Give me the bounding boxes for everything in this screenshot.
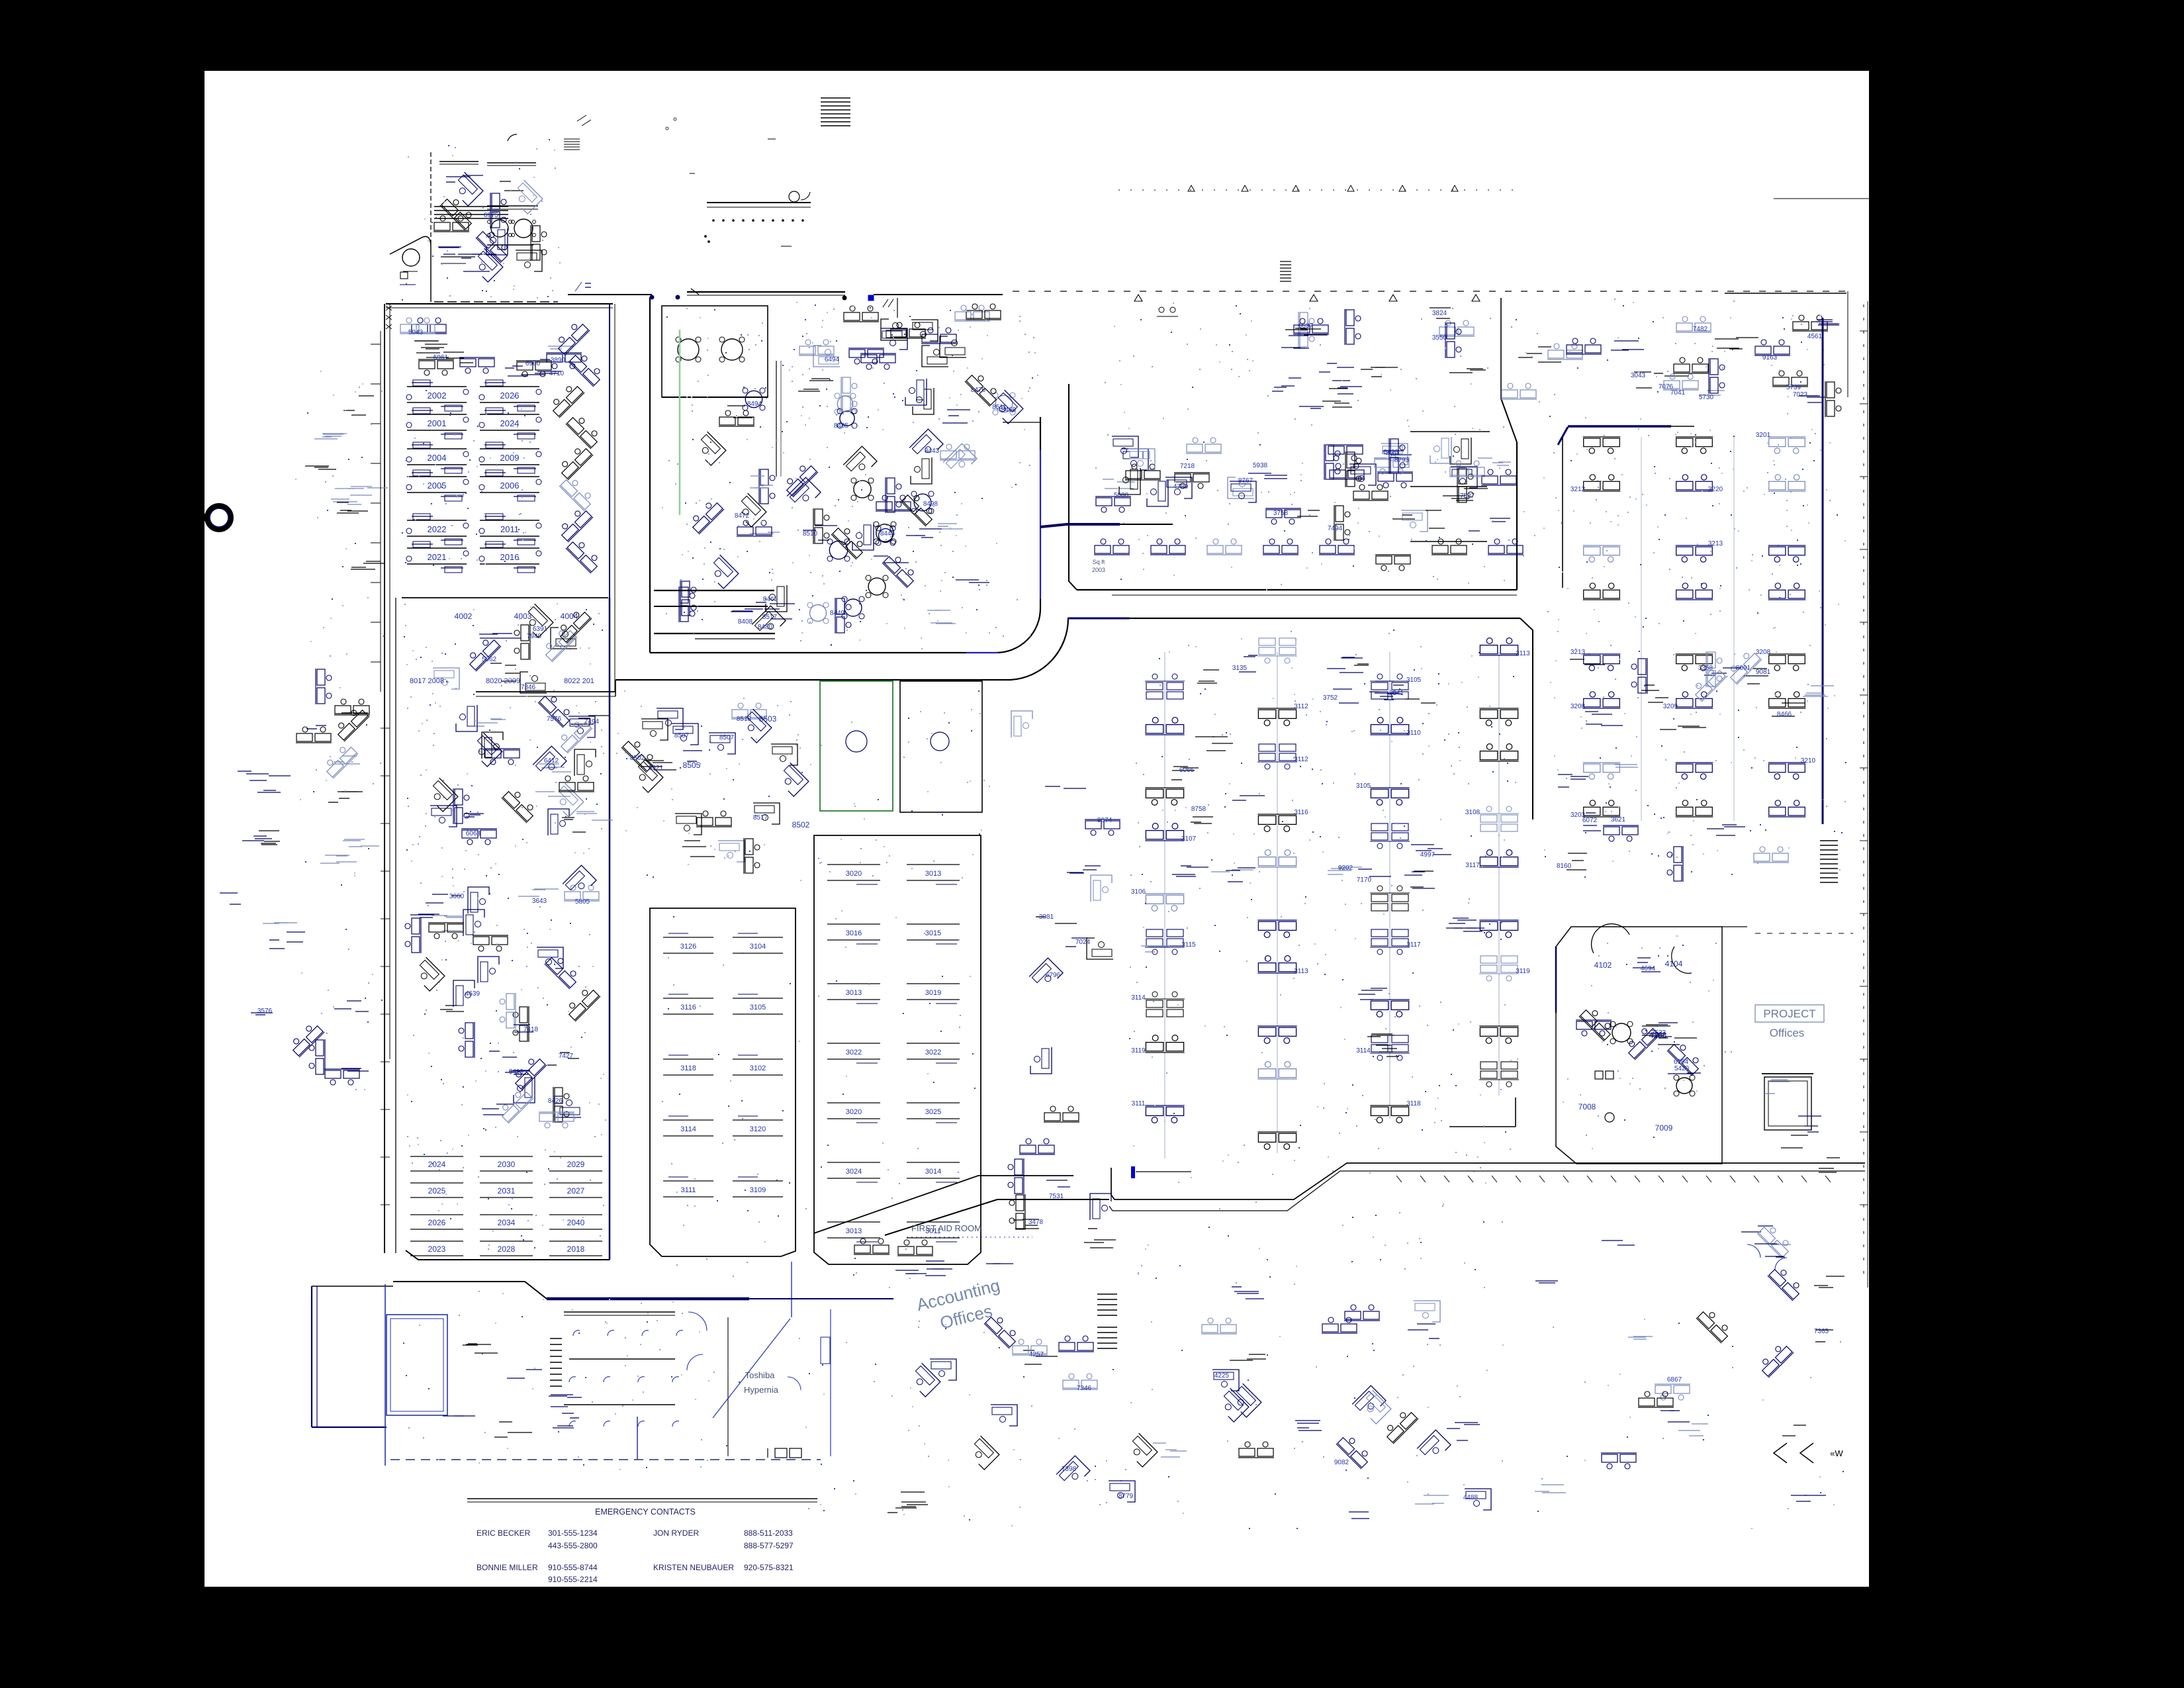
svg-text:FIRST AID ROOM: FIRST AID ROOM — [911, 1223, 981, 1233]
svg-text:8758: 8758 — [1191, 806, 1206, 813]
svg-text:3824: 3824 — [1432, 310, 1447, 317]
svg-text:2006: 2006 — [500, 481, 520, 491]
svg-text:8502: 8502 — [792, 820, 810, 829]
svg-text:EMERGENCY CONTACTS: EMERGENCY CONTACTS — [595, 1507, 696, 1517]
svg-text:3550: 3550 — [1432, 334, 1447, 342]
svg-text:2023: 2023 — [428, 1244, 446, 1254]
svg-text:2026: 2026 — [428, 1218, 446, 1227]
svg-text:4639: 4639 — [465, 990, 480, 998]
svg-text:3890: 3890 — [551, 357, 566, 364]
svg-text:JON RYDER: JON RYDER — [653, 1528, 699, 1538]
svg-text:2004: 2004 — [428, 453, 447, 463]
svg-text:8941: 8941 — [1389, 690, 1404, 697]
svg-text:8502: 8502 — [630, 755, 645, 762]
svg-text:8511: 8511 — [992, 404, 1007, 411]
svg-text:6391: 6391 — [533, 626, 548, 633]
svg-text:3115: 3115 — [1181, 941, 1196, 949]
svg-text:BONNIE MILLER: BONNIE MILLER — [477, 1563, 538, 1572]
svg-text:3024: 3024 — [846, 1168, 862, 1176]
svg-text:7398: 7398 — [1062, 1466, 1077, 1473]
svg-text:8022 201: 8022 201 — [564, 677, 594, 685]
svg-text:8505: 8505 — [683, 761, 701, 770]
svg-text:9081: 9081 — [1756, 669, 1771, 676]
svg-text:888-577-5297: 888-577-5297 — [744, 1541, 794, 1550]
svg-text:3106: 3106 — [1131, 888, 1146, 896]
svg-text:6072: 6072 — [1582, 817, 1598, 824]
svg-text:8020 2009: 8020 2009 — [486, 677, 520, 685]
svg-text:888-511-2033: 888-511-2033 — [744, 1528, 793, 1538]
svg-text:8503: 8503 — [759, 714, 777, 724]
svg-text:7346: 7346 — [1077, 1385, 1092, 1392]
svg-text:9202: 9202 — [1338, 865, 1353, 872]
svg-text:7009: 7009 — [1655, 1123, 1673, 1133]
svg-text:5730: 5730 — [1699, 394, 1714, 401]
svg-text:7024: 7024 — [1075, 939, 1091, 946]
svg-text:3208: 3208 — [1756, 649, 1771, 656]
svg-text:Sq ft: Sq ft — [1093, 559, 1105, 565]
svg-text:8426: 8426 — [548, 1098, 563, 1105]
svg-text:3114: 3114 — [1131, 994, 1146, 1002]
svg-text:8443: 8443 — [925, 447, 940, 455]
svg-text:4694: 4694 — [1641, 965, 1656, 972]
svg-text:6796: 6796 — [1046, 972, 1061, 979]
svg-text:8779: 8779 — [1118, 1493, 1134, 1500]
svg-text:3102: 3102 — [750, 1064, 766, 1072]
svg-text:3025: 3025 — [925, 1108, 941, 1116]
svg-text:PROJECT: PROJECT — [1763, 1008, 1815, 1020]
svg-text:2024: 2024 — [500, 418, 520, 428]
svg-text:4710: 4710 — [549, 370, 565, 377]
svg-text:910-555-8744: 910-555-8744 — [548, 1563, 598, 1572]
svg-text:3108: 3108 — [1465, 809, 1480, 816]
svg-text:3368: 3368 — [1698, 665, 1713, 672]
svg-text:6494: 6494 — [825, 356, 840, 363]
svg-text:5805: 5805 — [575, 898, 590, 906]
svg-text:4257: 4257 — [1029, 1351, 1044, 1358]
svg-text:4225: 4225 — [1214, 1372, 1230, 1380]
svg-text:3135: 3135 — [1232, 665, 1248, 672]
svg-text:6867: 6867 — [1667, 1376, 1682, 1383]
svg-text:4561: 4561 — [1807, 333, 1823, 340]
svg-text:3013: 3013 — [925, 870, 941, 878]
svg-text:910-555-2214: 910-555-2214 — [548, 1575, 598, 1584]
svg-text:4104: 4104 — [1665, 959, 1683, 968]
svg-text:3213: 3213 — [1570, 649, 1586, 656]
svg-text:3019: 3019 — [925, 989, 941, 997]
svg-text:443-555-2800: 443-555-2800 — [548, 1541, 598, 1550]
svg-text:ERIC BECKER: ERIC BECKER — [477, 1528, 531, 1538]
svg-text:8494: 8494 — [747, 400, 762, 408]
svg-text:7023: 7023 — [1793, 391, 1808, 399]
svg-text:3113: 3113 — [1294, 968, 1308, 975]
svg-text:8466: 8466 — [1777, 711, 1792, 718]
svg-text:3013: 3013 — [846, 1227, 862, 1235]
svg-text:4003: 4003 — [514, 612, 532, 621]
svg-text:7482: 7482 — [1693, 326, 1708, 333]
svg-text:2011: 2011 — [500, 524, 519, 534]
svg-text:3014: 3014 — [925, 1168, 941, 1176]
svg-text:8507: 8507 — [674, 732, 690, 739]
svg-text:5080: 5080 — [1114, 492, 1129, 499]
svg-text:3105: 3105 — [1356, 782, 1371, 790]
svg-text:3116: 3116 — [680, 1004, 696, 1011]
svg-text:8017 2008: 8017 2008 — [410, 677, 444, 685]
svg-text:5938: 5938 — [1253, 462, 1268, 469]
svg-text:920-575-8321: 920-575-8321 — [744, 1563, 794, 1572]
svg-text:3112: 3112 — [1294, 703, 1308, 710]
svg-text:8517: 8517 — [762, 614, 778, 621]
svg-text:6063: 6063 — [466, 830, 481, 837]
svg-text:3104: 3104 — [750, 943, 766, 951]
svg-text:3576: 3576 — [257, 1008, 273, 1015]
svg-text:3220: 3220 — [1708, 486, 1723, 493]
svg-text:2034: 2034 — [498, 1218, 516, 1227]
svg-text:2025: 2025 — [428, 1186, 446, 1196]
svg-text:2018: 2018 — [567, 1244, 585, 1254]
svg-text:3013: 3013 — [846, 989, 862, 997]
svg-text:3111: 3111 — [1132, 1100, 1146, 1107]
svg-text:5043: 5043 — [408, 329, 424, 336]
svg-text:9163: 9163 — [1762, 354, 1778, 361]
svg-text:8480: 8480 — [758, 624, 773, 631]
svg-text:3022: 3022 — [925, 1049, 941, 1056]
svg-text:8510: 8510 — [803, 530, 818, 538]
svg-text:3114: 3114 — [680, 1125, 696, 1133]
svg-text:3621: 3621 — [1611, 816, 1626, 823]
svg-text:3118: 3118 — [680, 1064, 696, 1072]
svg-text:3109: 3109 — [750, 1186, 766, 1194]
svg-text:6412: 6412 — [544, 757, 559, 765]
svg-text:2028: 2028 — [498, 1244, 516, 1254]
svg-text:8498: 8498 — [923, 500, 938, 508]
svg-text:3119: 3119 — [1516, 968, 1530, 975]
svg-text:3752: 3752 — [1323, 694, 1338, 702]
svg-text:7365: 7365 — [1814, 1328, 1829, 1335]
svg-text:3478: 3478 — [1028, 1219, 1044, 1226]
svg-text:3111: 3111 — [681, 1186, 696, 1194]
svg-text:3119: 3119 — [1131, 1047, 1146, 1055]
svg-text:3116: 3116 — [1294, 809, 1308, 816]
svg-text:3210: 3210 — [1801, 757, 1816, 765]
svg-text:8408: 8408 — [738, 618, 753, 626]
svg-text:3212: 3212 — [1570, 486, 1586, 493]
svg-text:3208: 3208 — [1570, 703, 1586, 710]
svg-text:Offices: Offices — [1770, 1027, 1805, 1039]
svg-text:3213: 3213 — [1708, 540, 1723, 547]
svg-text:3016: 3016 — [846, 929, 862, 937]
svg-text:3114: 3114 — [1356, 1047, 1371, 1055]
svg-text:3043: 3043 — [1631, 372, 1646, 379]
svg-text:2026: 2026 — [500, 391, 520, 400]
svg-text:3126: 3126 — [680, 943, 696, 951]
svg-text:3022: 3022 — [846, 1049, 862, 1056]
svg-text:7041: 7041 — [1670, 389, 1686, 397]
svg-text:7537: 7537 — [1460, 492, 1475, 500]
svg-text:3643: 3643 — [532, 898, 547, 905]
svg-text:2030: 2030 — [498, 1160, 516, 1169]
svg-text:6960: 6960 — [525, 360, 541, 367]
svg-text:KRISTEN NEUBAUER: KRISTEN NEUBAUER — [653, 1563, 734, 1572]
svg-text:3081: 3081 — [1039, 914, 1054, 921]
svg-text:9082: 9082 — [1334, 1459, 1349, 1466]
svg-text:2021: 2021 — [428, 552, 447, 562]
svg-text:2022: 2022 — [428, 524, 447, 534]
svg-text:8507: 8507 — [719, 734, 735, 741]
svg-text:3758: 3758 — [1273, 510, 1289, 517]
svg-text:3015: 3015 — [925, 929, 941, 937]
svg-text:3020: 3020 — [846, 870, 862, 878]
svg-text:2027: 2027 — [567, 1186, 585, 1196]
svg-text:3112: 3112 — [1294, 756, 1308, 763]
svg-text:3660: 3660 — [449, 893, 465, 900]
svg-text:«W: «W — [1830, 1448, 1843, 1458]
svg-text:Hypernia: Hypernia — [744, 1385, 779, 1395]
svg-text:6975: 6975 — [484, 212, 499, 219]
svg-text:4002: 4002 — [455, 612, 473, 621]
svg-text:4004: 4004 — [561, 612, 578, 621]
svg-text:8160: 8160 — [1557, 863, 1572, 870]
svg-text:5062: 5062 — [482, 656, 497, 663]
svg-text:3105: 3105 — [750, 1004, 766, 1011]
svg-text:2009: 2009 — [500, 453, 520, 463]
svg-text:2002: 2002 — [428, 391, 447, 400]
svg-text:7427: 7427 — [559, 1053, 574, 1060]
svg-text:8449: 8449 — [830, 610, 845, 617]
svg-text:3120: 3120 — [750, 1125, 766, 1133]
svg-text:7218: 7218 — [1180, 463, 1195, 470]
svg-text:8472: 8472 — [735, 512, 750, 520]
svg-text:3209: 3209 — [1663, 703, 1678, 710]
svg-text:2001: 2001 — [428, 418, 447, 428]
svg-text:8476: 8476 — [971, 387, 986, 394]
svg-text:2016: 2016 — [500, 552, 520, 562]
svg-text:7494: 7494 — [1328, 525, 1343, 532]
svg-text:8446: 8446 — [880, 530, 895, 538]
svg-text:8521: 8521 — [649, 765, 664, 772]
svg-text:4488: 4488 — [1463, 1494, 1479, 1501]
svg-text:4789: 4789 — [1173, 483, 1189, 491]
svg-text:2003: 2003 — [1092, 567, 1105, 573]
svg-text:3117: 3117 — [1406, 941, 1421, 949]
svg-text:5420: 5420 — [1674, 1065, 1690, 1072]
svg-text:6066: 6066 — [1179, 767, 1195, 774]
svg-text:3105: 3105 — [1406, 677, 1422, 684]
svg-text:2005: 2005 — [428, 481, 447, 491]
svg-text:3118: 3118 — [1406, 1100, 1421, 1107]
svg-text:3107: 3107 — [1181, 835, 1197, 843]
svg-text:5739: 5739 — [1786, 384, 1801, 391]
svg-text:7346: 7346 — [521, 684, 536, 691]
svg-text:7008: 7008 — [1578, 1102, 1596, 1111]
svg-text:4102: 4102 — [1594, 961, 1612, 970]
svg-text:7576: 7576 — [547, 716, 562, 723]
svg-text:3020: 3020 — [846, 1108, 862, 1116]
svg-text:2029: 2029 — [567, 1160, 585, 1169]
svg-text:9074: 9074 — [1097, 817, 1113, 824]
svg-text:7170: 7170 — [1357, 876, 1372, 884]
svg-text:3113: 3113 — [1516, 650, 1530, 657]
svg-text:2031: 2031 — [498, 1186, 516, 1196]
svg-text:Toshiba: Toshiba — [745, 1370, 776, 1380]
svg-text:3117: 3117 — [1465, 862, 1480, 869]
svg-text:301-555-1234: 301-555-1234 — [548, 1528, 598, 1538]
svg-text:4997: 4997 — [1420, 851, 1435, 859]
svg-text:3110: 3110 — [1406, 729, 1421, 737]
svg-text:5623: 5623 — [1384, 449, 1399, 456]
svg-text:2040: 2040 — [567, 1218, 585, 1227]
svg-text:8485: 8485 — [834, 422, 849, 430]
svg-text:2024: 2024 — [428, 1160, 446, 1169]
svg-text:7494: 7494 — [584, 718, 600, 726]
